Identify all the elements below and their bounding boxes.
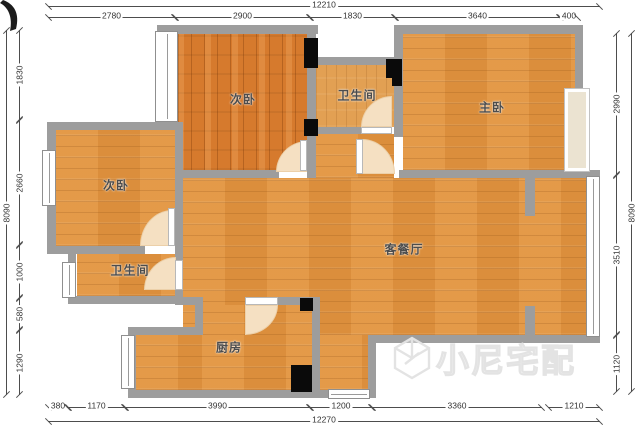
window: [328, 389, 370, 399]
shaft-black: [304, 119, 318, 136]
dim-bottom-seg: 1210: [548, 407, 600, 408]
dim-bottom-seg: 3360: [372, 407, 542, 408]
door-leaf: [300, 140, 307, 171]
door-leaf: [356, 139, 363, 174]
wall: [525, 306, 535, 339]
dim-left-total: 8090: [6, 30, 7, 395]
shaft-black: [304, 38, 318, 68]
room-label-bedroom2-left: 次卧: [103, 177, 129, 194]
window: [586, 176, 600, 337]
wall: [47, 246, 145, 254]
dim-top-seg: 2780: [48, 17, 175, 18]
room-label-bath-top: 卫生间: [337, 87, 376, 104]
dim-top-seg: 2900: [175, 17, 310, 18]
window: [42, 150, 56, 206]
dim-right-seg: 1120: [616, 335, 617, 392]
dim-bottom-seg: 1200: [310, 407, 372, 408]
wall: [395, 25, 583, 34]
wall: [175, 122, 183, 260]
dim-bottom-seg: 1170: [68, 407, 125, 408]
dim-left-seg: 2660: [19, 120, 20, 245]
dim-top-total: 12210: [48, 6, 600, 7]
window: [62, 262, 76, 298]
floor-kitchen: [136, 335, 202, 390]
dim-left-seg: 1290: [19, 330, 20, 395]
door-leaf: [245, 297, 278, 305]
wall: [368, 335, 600, 343]
shaft-black: [300, 298, 313, 311]
door-leaf: [361, 127, 392, 134]
bay-window: [564, 88, 590, 172]
wall: [157, 25, 318, 34]
dim-right-seg: 3510: [616, 175, 617, 335]
dim-right-total: 8090: [631, 33, 632, 392]
dim-bottom-seg: 3990: [125, 407, 310, 408]
dim-bottom-total: 12270: [48, 421, 600, 422]
floor-passage: [320, 335, 368, 390]
dim-left-seg: 1830: [19, 30, 20, 120]
wall: [47, 122, 183, 130]
room-label-bedroom2-top: 次卧: [230, 91, 256, 108]
shaft-black: [291, 365, 312, 392]
wall: [312, 297, 320, 398]
floor-plan: 次卧 卫生间 主卧 次卧 卫生间 客餐厅 厨房 12210 2780 2900 …: [0, 0, 640, 433]
dim-right-seg: 2990: [616, 33, 617, 175]
window: [155, 31, 178, 122]
door-leaf: [168, 208, 175, 246]
room-label-living: 客餐厅: [384, 241, 423, 258]
room-label-kitchen: 厨房: [216, 339, 242, 356]
dim-top-seg: 3640: [395, 17, 560, 18]
wall: [310, 57, 398, 65]
door-leaf: [175, 260, 183, 290]
dim-left-seg: 1000: [19, 245, 20, 298]
wall: [525, 178, 535, 216]
wall: [575, 25, 583, 90]
wall: [316, 127, 362, 134]
wall: [178, 170, 279, 178]
wall: [128, 327, 202, 335]
room-label-master: 主卧: [479, 99, 505, 116]
dim-top-seg: 1830: [310, 17, 395, 18]
window: [121, 335, 135, 389]
dim-top-seg: 400: [560, 17, 578, 18]
shaft-black: [392, 76, 402, 86]
dim-bottom-seg: 380: [48, 407, 68, 408]
dim-left-seg: 580: [19, 298, 20, 330]
room-label-bath-left: 卫生间: [110, 262, 149, 279]
wall: [68, 296, 183, 304]
